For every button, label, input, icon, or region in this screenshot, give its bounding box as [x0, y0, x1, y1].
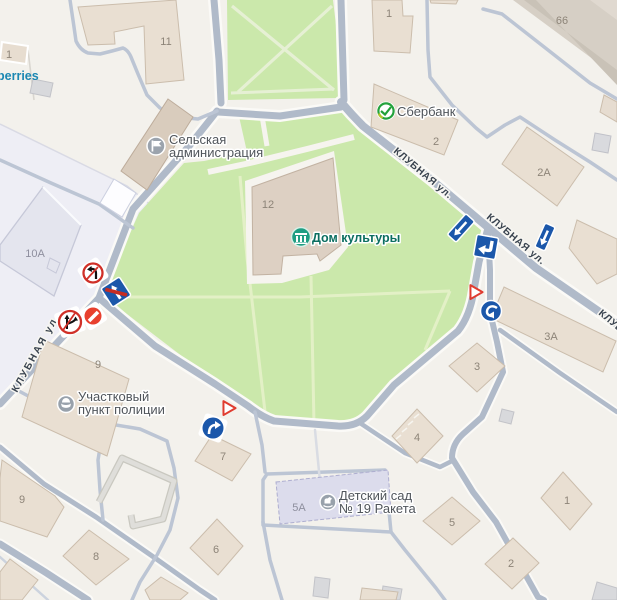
svg-text:12: 12: [262, 199, 274, 211]
svg-text:3: 3: [474, 361, 480, 373]
svg-text:1: 1: [564, 495, 570, 507]
svg-text:2А: 2А: [537, 167, 551, 179]
svg-text:9: 9: [19, 494, 25, 506]
svg-text:1: 1: [6, 49, 12, 61]
svg-text:7: 7: [220, 451, 226, 463]
svg-text:10А: 10А: [25, 248, 45, 260]
svg-text:№ 19 Ракета: № 19 Ракета: [339, 501, 417, 516]
svg-text:5А: 5А: [292, 502, 306, 514]
svg-text:5: 5: [449, 517, 455, 529]
svg-text:1: 1: [386, 8, 392, 20]
svg-text:66: 66: [556, 15, 568, 27]
svg-text:Дом культуры: Дом культуры: [312, 231, 400, 245]
svg-text:администрация: администрация: [169, 145, 263, 160]
svg-text:6: 6: [213, 544, 219, 556]
svg-text:9: 9: [95, 359, 101, 371]
svg-text:Сбербанк: Сбербанк: [397, 104, 456, 119]
svg-text:4: 4: [414, 432, 420, 444]
svg-text:2: 2: [433, 136, 439, 148]
svg-text:3А: 3А: [544, 331, 558, 343]
svg-text:пункт полиции: пункт полиции: [78, 402, 165, 417]
svg-text:2: 2: [508, 558, 514, 570]
svg-text:11: 11: [160, 36, 171, 48]
svg-text:8: 8: [93, 551, 99, 563]
svg-text:berries: berries: [0, 69, 39, 83]
